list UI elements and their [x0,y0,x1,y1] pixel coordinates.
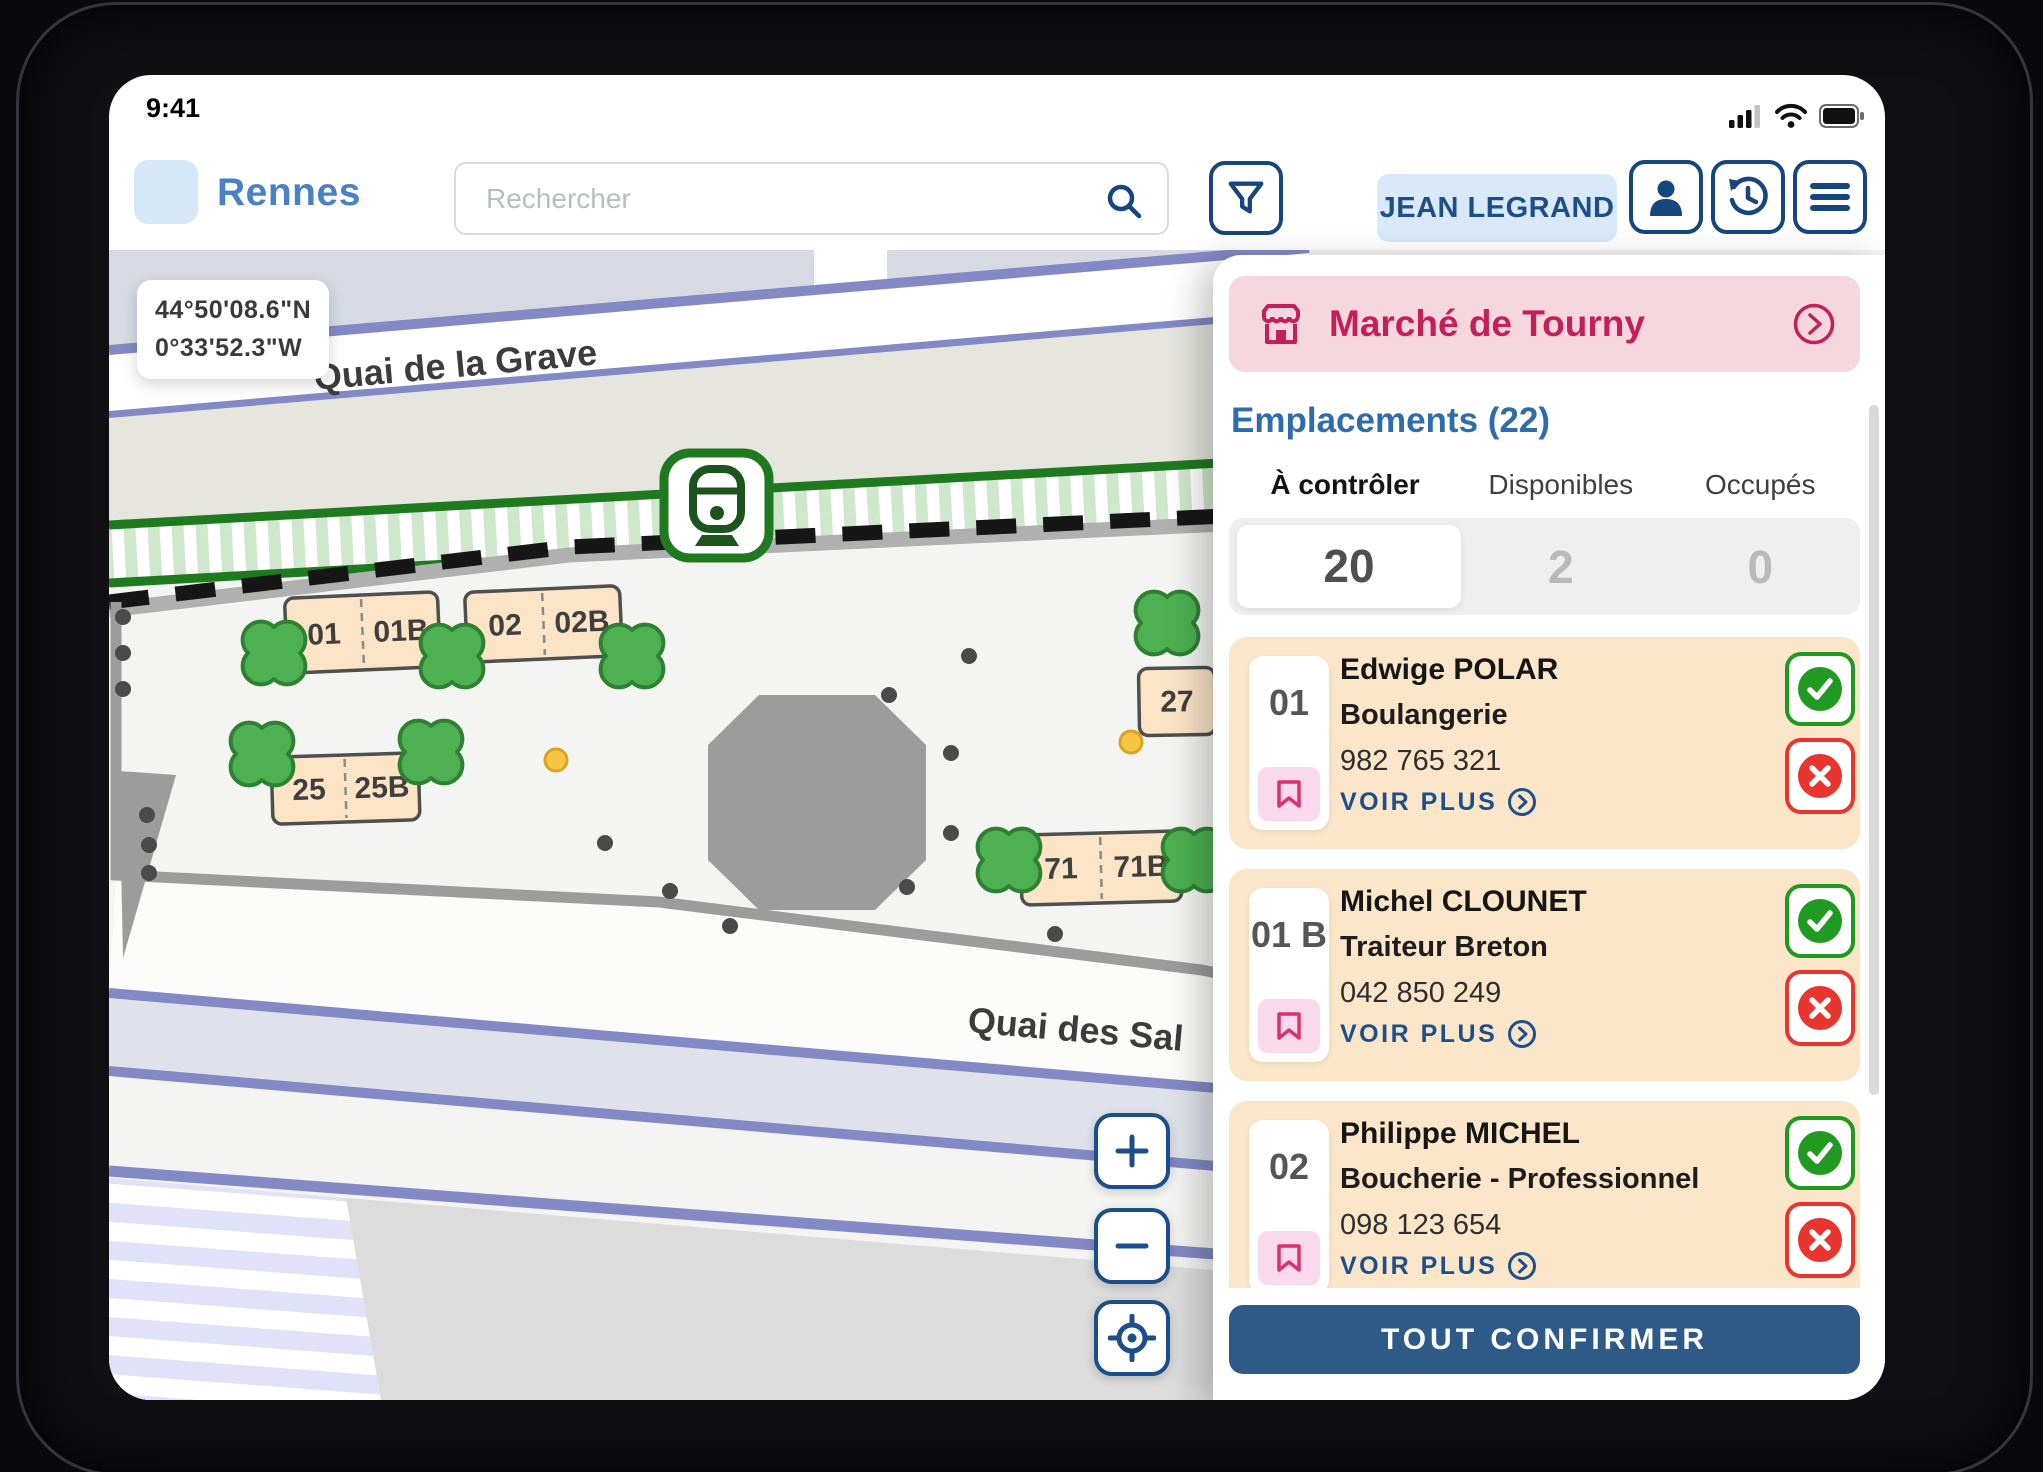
stall-list[interactable]: 01 Edwige POLAR Boulangerie 982 765 321 … [1229,637,1860,1288]
stall-71-71b[interactable]: 71 71B [1020,831,1182,905]
tablet-frame: 9:41 Rennes JEAN LEGRAND [16,2,2033,1472]
confirm-all-button[interactable]: TOUT CONFIRMER [1229,1305,1860,1374]
check-icon [1796,897,1844,945]
svg-text:01: 01 [307,617,342,651]
yellow-marker [1120,731,1142,753]
count-a-controler[interactable]: 20 [1237,525,1461,608]
merchant-phone: 042 850 249 [1340,977,1501,1010]
reject-stall-button[interactable] [1785,970,1855,1046]
coordinate-lon: 0°33'52.3"W [155,330,311,368]
coordinates-badge: 44°50'08.6"N 0°33'52.3"W [137,280,329,379]
person-icon [1644,175,1688,219]
market-name: Marché de Tourny [1329,303,1645,345]
chevron-circle-icon [1507,1019,1537,1049]
stall-number: 01 [1249,682,1329,724]
svg-text:71B: 71B [1113,850,1169,884]
zoom-in-button[interactable] [1094,1113,1170,1189]
see-more-link[interactable]: VOIR PLUS [1340,787,1537,817]
octagon-structure [708,695,926,910]
menu-button[interactable] [1793,160,1867,234]
stall-02-02b[interactable]: 02 02B [465,586,623,663]
search-icon[interactable] [1103,180,1145,222]
merchant-name: Edwige POLAR [1340,653,1558,687]
battery-icon [1819,104,1865,128]
bookmark-icon [1276,779,1302,809]
see-more-link[interactable]: VOIR PLUS [1340,1251,1537,1281]
cross-icon [1796,1216,1844,1264]
merchant-phone: 982 765 321 [1340,745,1501,778]
stall-27[interactable]: 27 [1138,667,1215,735]
merchant-activity: Boucherie - Professionnel [1340,1163,1699,1196]
stall-card[interactable]: 01 Edwige POLAR Boulangerie 982 765 321 … [1229,637,1860,849]
svg-text:02: 02 [488,608,523,642]
merchant-activity: Boulangerie [1340,699,1508,732]
see-more-link[interactable]: VOIR PLUS [1340,1019,1537,1049]
locate-button[interactable] [1094,1300,1170,1376]
bookmark-icon [1276,1243,1302,1273]
merchant-name: Philippe MICHEL [1340,1117,1580,1151]
merchant-name: Michel CLOUNET [1340,885,1587,919]
stall-number: 01 B [1249,914,1329,956]
app-screen: 9:41 Rennes JEAN LEGRAND [109,75,1885,1400]
panel-scrollbar[interactable] [1869,405,1879,1095]
zoom-out-button[interactable] [1094,1208,1170,1284]
plus-icon [1112,1131,1152,1171]
app-logo[interactable] [134,160,198,224]
search-input[interactable] [484,182,1097,216]
confirm-stall-button[interactable] [1785,652,1855,726]
storefront-icon [1259,303,1303,345]
reject-stall-button[interactable] [1785,738,1855,814]
market-header[interactable]: Marché de Tourny [1229,276,1860,372]
status-tabs: À contrôler Disponibles Occupés [1229,469,1860,501]
stall-card[interactable]: 02 Philippe MICHEL Boucherie - Professio… [1229,1101,1860,1288]
count-disponibles[interactable]: 2 [1461,540,1661,594]
svg-text:71: 71 [1044,852,1078,886]
device-photo: 9:41 Rennes JEAN LEGRAND [0,0,2043,1472]
chevron-circle-icon [1507,1251,1537,1281]
minus-icon [1112,1226,1152,1266]
bookmark-chip[interactable] [1258,1231,1320,1285]
chevron-circle-icon[interactable] [1792,302,1836,346]
stall-number-box: 01 B [1249,888,1329,1062]
stall-number-box: 02 [1249,1120,1329,1288]
cellular-icon [1729,103,1763,129]
hatched-zone [109,1178,381,1400]
history-icon [1726,175,1770,219]
user-name-chip[interactable]: JEAN LEGRAND [1377,174,1617,242]
history-button[interactable] [1711,160,1785,234]
city-title: Rennes [217,171,361,215]
tab-a-controler[interactable]: À contrôler [1229,469,1461,501]
bookmark-icon [1276,1011,1302,1041]
check-icon [1796,665,1844,713]
hamburger-icon [1809,179,1851,215]
svg-text:27: 27 [1160,685,1194,719]
crosshair-icon [1108,1314,1156,1362]
bookmark-chip[interactable] [1258,767,1320,821]
count-occupes[interactable]: 0 [1661,540,1861,594]
tab-disponibles[interactable]: Disponibles [1461,469,1661,501]
filter-button[interactable] [1209,161,1283,235]
stall-number: 02 [1249,1146,1329,1188]
profile-button[interactable] [1629,160,1703,234]
status-time: 9:41 [146,93,200,124]
check-icon [1796,1129,1844,1177]
section-title: Emplacements (22) [1231,401,1550,441]
stall-number-box: 01 [1249,656,1329,830]
status-counts: 20 2 0 [1229,518,1860,615]
coordinate-lat: 44°50'08.6"N [155,292,311,330]
stall-01-01b[interactable]: 01 01B [284,592,440,674]
cross-icon [1796,752,1844,800]
filter-icon [1225,178,1267,218]
search-bar[interactable] [454,162,1169,235]
confirm-stall-button[interactable] [1785,884,1855,958]
wifi-icon [1775,103,1807,129]
merchant-activity: Traiteur Breton [1340,931,1548,964]
confirm-stall-button[interactable] [1785,1116,1855,1190]
status-icons [1729,103,1865,129]
stall-card[interactable]: 01 B Michel CLOUNET Traiteur Breton 042 … [1229,869,1860,1081]
tram-station-icon[interactable] [664,453,769,558]
market-panel: Marché de Tourny Emplacements (22) À con… [1213,255,1885,1400]
bookmark-chip[interactable] [1258,999,1320,1053]
chevron-circle-icon [1507,787,1537,817]
tab-occupes[interactable]: Occupés [1661,469,1861,501]
yellow-marker [545,749,567,771]
cross-icon [1796,984,1844,1032]
svg-text:25: 25 [292,773,326,807]
merchant-phone: 098 123 654 [1340,1209,1501,1242]
reject-stall-button[interactable] [1785,1202,1855,1278]
